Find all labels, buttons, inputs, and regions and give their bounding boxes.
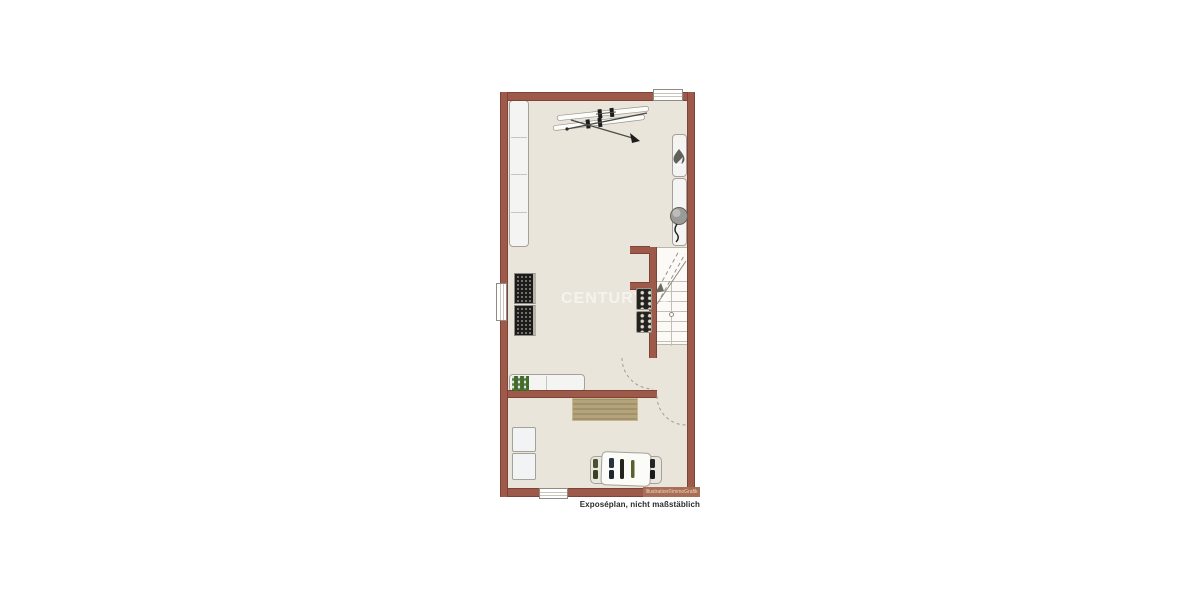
boiler-unit — [672, 178, 687, 246]
plan-caption: Exposéplan, nicht maßstäblich — [500, 500, 700, 509]
cabinet-divider — [511, 174, 527, 175]
storage-shelf-lower — [514, 305, 536, 336]
cabinet-divider — [511, 137, 527, 138]
washer-lower — [512, 453, 536, 480]
storage-shelf-upper — [514, 273, 536, 304]
wall-stub-upper — [630, 246, 650, 254]
shoe-bench-tray — [600, 451, 651, 487]
window-bottom — [539, 488, 568, 499]
wall-interior — [508, 390, 657, 398]
wall-right — [687, 92, 695, 497]
washer-upper — [512, 427, 536, 452]
beverage-crate-lower — [636, 311, 652, 333]
beverage-crate-upper — [636, 288, 652, 310]
stair-newel-post — [669, 312, 674, 317]
floor-plan: CENTURY 21 — [0, 0, 1200, 600]
cabinet-divider — [511, 212, 527, 213]
window-left — [496, 283, 507, 321]
wardrobe-row — [509, 100, 529, 247]
sideboard-divider — [546, 376, 547, 390]
doormat — [572, 398, 638, 421]
credit-badge: Illustration©immoGrafik — [643, 487, 700, 497]
heater-unit — [672, 134, 687, 177]
window-top — [653, 89, 683, 101]
plant-icon — [512, 376, 529, 391]
